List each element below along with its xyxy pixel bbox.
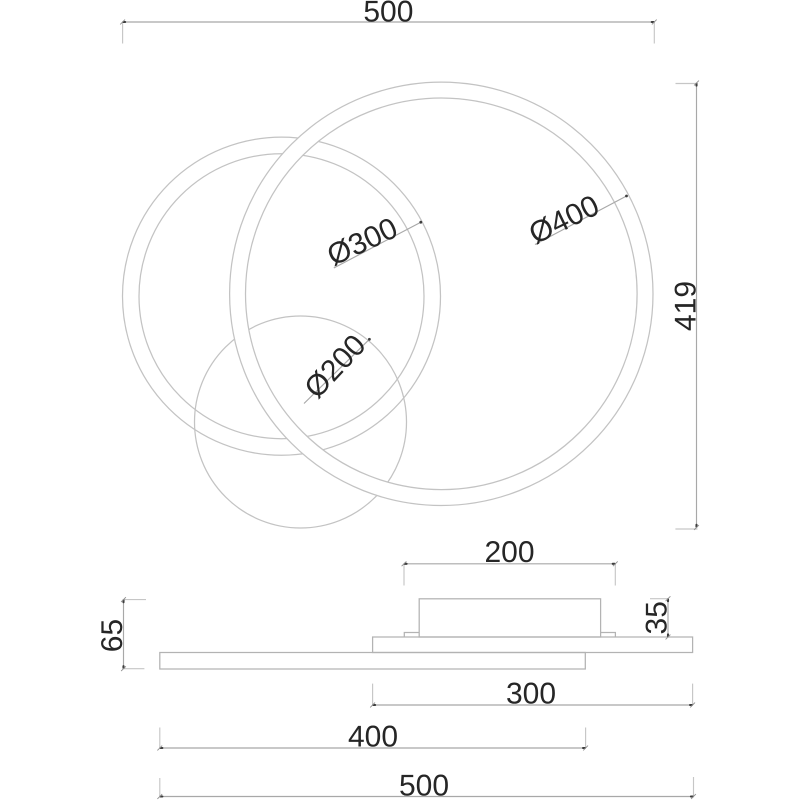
svg-text:300: 300	[506, 678, 556, 711]
svg-text:65: 65	[96, 619, 129, 652]
svg-text:400: 400	[348, 721, 398, 754]
svg-text:200: 200	[484, 536, 534, 569]
svg-text:419: 419	[669, 281, 702, 331]
svg-text:500: 500	[399, 770, 449, 800]
svg-text:500: 500	[363, 0, 413, 29]
svg-text:35: 35	[641, 601, 674, 634]
